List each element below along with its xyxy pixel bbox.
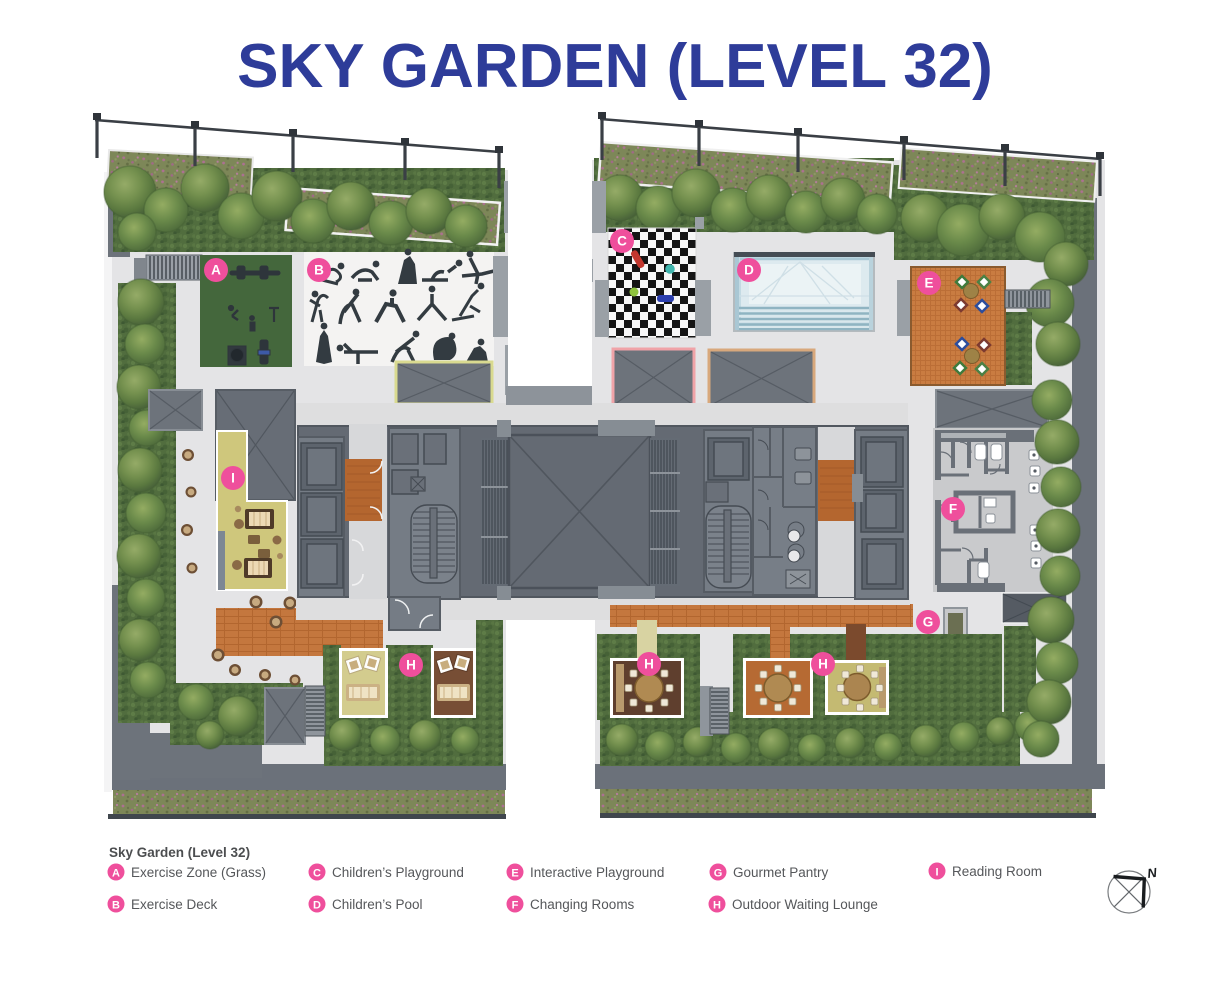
svg-text:F: F [512,900,519,912]
svg-text:A: A [112,868,120,880]
svg-text:Children’s Pool: Children’s Pool [332,897,423,912]
svg-text:Exercise Deck: Exercise Deck [131,897,218,912]
svg-text:D: D [313,900,321,912]
svg-text:Interactive Playground: Interactive Playground [530,865,664,880]
svg-text:F: F [949,502,957,517]
svg-text:Reading Room: Reading Room [952,864,1042,879]
svg-text:B: B [314,263,324,278]
svg-text:Children’s Playground: Children’s Playground [332,865,464,880]
svg-text:Gourmet Pantry: Gourmet Pantry [733,865,829,880]
svg-text:C: C [313,868,321,880]
svg-text:Sky Garden (Level 32): Sky Garden (Level 32) [109,845,250,860]
svg-text:H: H [406,658,416,673]
svg-text:SKY GARDEN (LEVEL 32): SKY GARDEN (LEVEL 32) [237,32,993,101]
svg-text:I: I [935,867,938,879]
svg-text:Changing Rooms: Changing Rooms [530,897,635,912]
svg-text:A: A [211,263,221,278]
svg-text:Outdoor Waiting Lounge: Outdoor Waiting Lounge [732,897,878,912]
svg-text:Exercise Zone (Grass): Exercise Zone (Grass) [131,865,266,880]
svg-text:E: E [511,868,518,880]
svg-text:H: H [713,900,721,912]
svg-text:H: H [644,657,654,672]
svg-text:E: E [924,276,933,291]
svg-text:C: C [617,234,627,249]
svg-text:G: G [923,615,934,630]
svg-text:I: I [231,471,235,486]
svg-text:D: D [744,263,754,278]
svg-text:H: H [818,657,828,672]
svg-text:B: B [112,900,120,912]
svg-text:G: G [714,868,723,880]
